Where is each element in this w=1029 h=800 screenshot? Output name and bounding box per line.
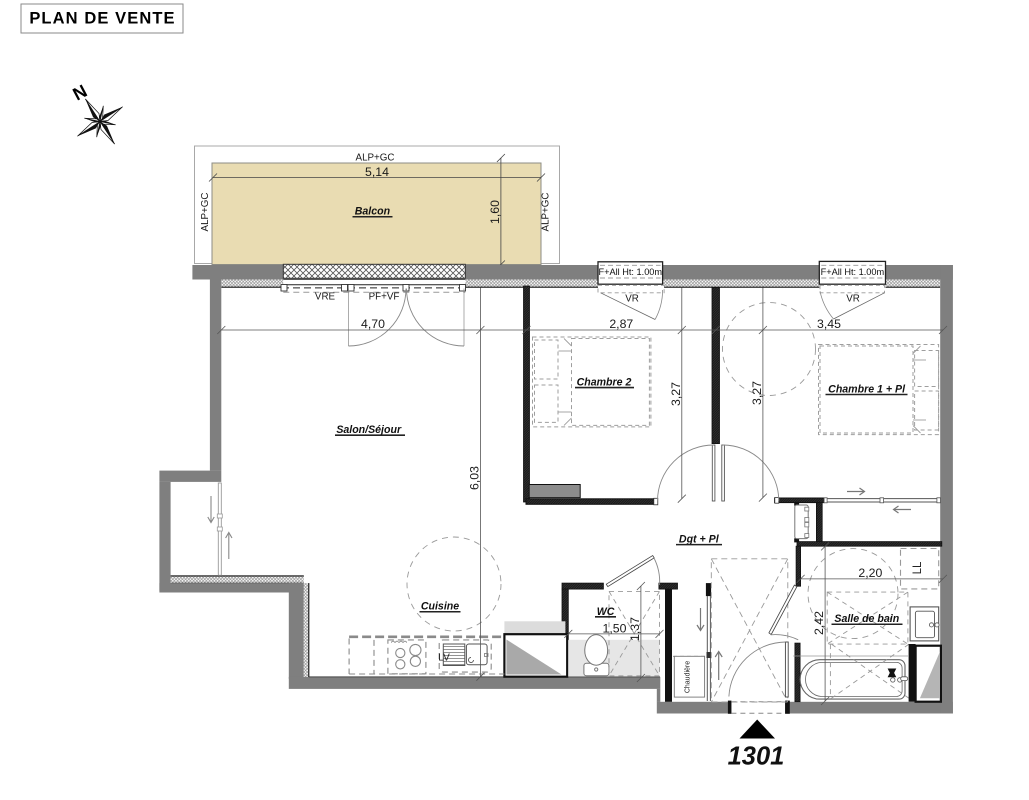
svg-text:3,45: 3,45 (817, 317, 841, 331)
svg-text:F+All Ht: 1.00m: F+All Ht: 1.00m (821, 267, 885, 277)
svg-text:VR: VR (625, 294, 639, 305)
svg-text:LV: LV (438, 653, 450, 664)
svg-text:PLAN DE VENTE: PLAN DE VENTE (29, 10, 175, 28)
svg-text:5,14: 5,14 (365, 165, 389, 179)
svg-text:2,42: 2,42 (812, 611, 826, 635)
svg-text:PF+VF: PF+VF (369, 292, 400, 303)
svg-text:LL: LL (912, 561, 924, 574)
svg-text:ALP+GC: ALP+GC (356, 153, 395, 164)
svg-text:F+All Ht: 1.00m: F+All Ht: 1.00m (599, 267, 663, 277)
svg-text:Salon/Séjour: Salon/Séjour (336, 424, 402, 436)
svg-text:1,50: 1,50 (603, 622, 627, 636)
svg-text:Chaudière: Chaudière (685, 661, 692, 693)
svg-text:6,03: 6,03 (468, 466, 482, 490)
svg-text:1301: 1301 (728, 743, 785, 771)
svg-text:1,37: 1,37 (628, 617, 642, 641)
svg-text:3,27: 3,27 (669, 382, 683, 406)
svg-text:Chambre 1 + Pl: Chambre 1 + Pl (828, 383, 906, 395)
svg-text:Chambre 2: Chambre 2 (577, 376, 632, 388)
svg-text:ALP+GC: ALP+GC (200, 193, 211, 232)
svg-text:3,27: 3,27 (750, 381, 764, 405)
svg-text:VR: VR (846, 294, 860, 305)
svg-text:Salle de bain: Salle de bain (834, 613, 899, 625)
svg-text:2,87: 2,87 (609, 317, 633, 331)
svg-text:Cuisine: Cuisine (421, 601, 459, 613)
svg-text:VRE: VRE (315, 292, 336, 303)
svg-text:ALP+GC: ALP+GC (541, 193, 552, 232)
svg-text:1,60: 1,60 (488, 200, 502, 224)
svg-text:Balcon: Balcon (355, 206, 391, 218)
svg-text:Dgt + Pl: Dgt + Pl (679, 533, 720, 545)
svg-text:2,20: 2,20 (858, 566, 882, 580)
svg-text:4,70: 4,70 (361, 317, 385, 331)
